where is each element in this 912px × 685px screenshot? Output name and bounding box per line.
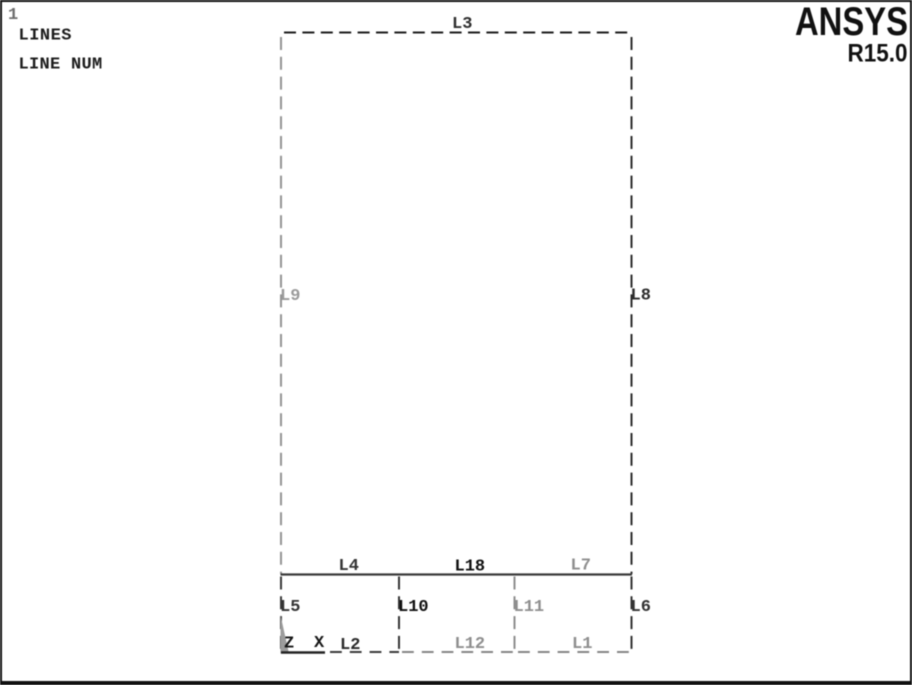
svg-text:L8: L8: [631, 287, 651, 306]
svg-text:L3: L3: [452, 15, 472, 34]
svg-text:ANSYS: ANSYS: [795, 0, 908, 44]
svg-text:1: 1: [8, 6, 18, 25]
svg-text:LINES: LINES: [19, 27, 73, 46]
svg-text:L10: L10: [398, 598, 429, 617]
svg-text:Z: Z: [284, 635, 294, 654]
svg-text:X: X: [314, 634, 325, 653]
svg-text:LINE NUM: LINE NUM: [19, 56, 103, 75]
svg-text:L7: L7: [571, 557, 591, 576]
svg-text:L9: L9: [280, 287, 300, 306]
svg-text:L12: L12: [455, 635, 486, 654]
svg-text:R15.0: R15.0: [848, 40, 908, 68]
svg-text:L4: L4: [339, 557, 359, 576]
svg-text:L2: L2: [340, 636, 360, 655]
svg-text:L1: L1: [572, 635, 592, 654]
svg-text:L6: L6: [631, 598, 651, 617]
svg-text:L11: L11: [514, 598, 545, 617]
svg-text:L18: L18: [455, 558, 486, 577]
svg-text:L5: L5: [280, 598, 300, 617]
